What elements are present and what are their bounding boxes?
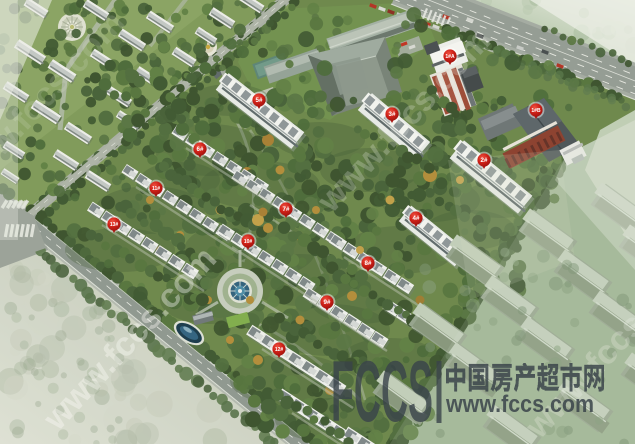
svg-text:13#: 13# <box>110 222 119 228</box>
svg-text:12#: 12# <box>275 347 284 353</box>
svg-text:6#: 6# <box>197 146 204 153</box>
svg-text:11#: 11# <box>152 186 160 192</box>
svg-text:3#: 3# <box>389 111 396 118</box>
svg-text:1#A: 1#A <box>445 54 455 60</box>
svg-text:1#B: 1#B <box>531 108 541 114</box>
svg-text:2#: 2# <box>481 157 488 164</box>
svg-text:4#: 4# <box>413 215 420 222</box>
svg-text:7#: 7# <box>283 206 290 213</box>
svg-text:5#: 5# <box>256 97 263 104</box>
svg-text:10#: 10# <box>244 239 253 245</box>
svg-text:8#: 8# <box>365 260 372 267</box>
svg-text:FCCS: FCCS <box>331 344 433 440</box>
svg-text:9#: 9# <box>324 299 331 306</box>
svg-text:www.fccs.com: www.fccs.com <box>445 391 594 418</box>
